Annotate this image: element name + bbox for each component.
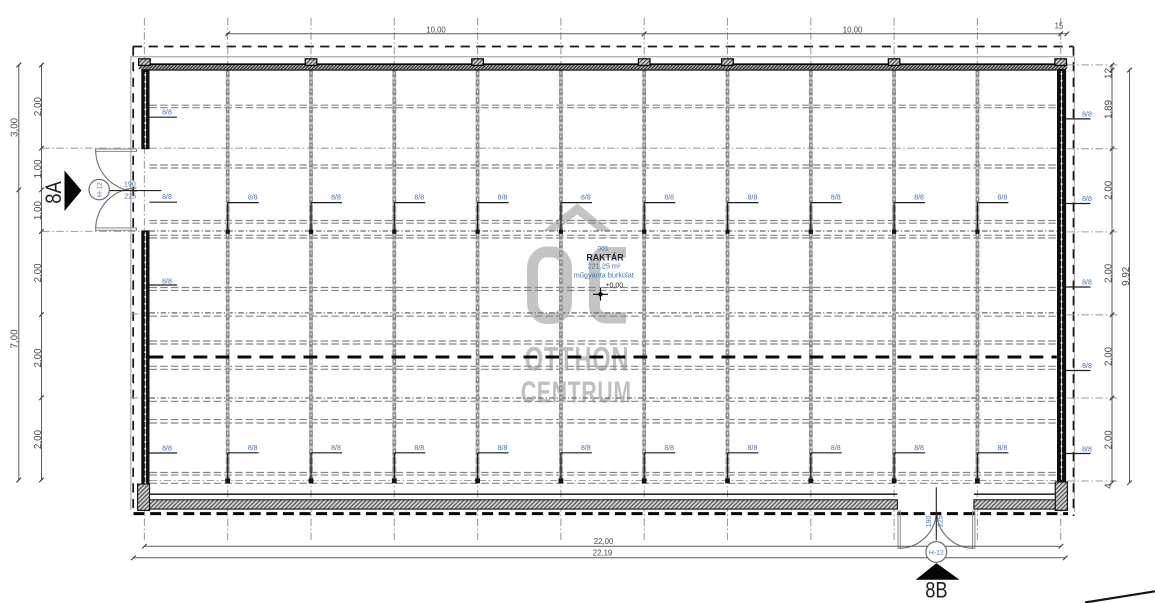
svg-text:2,00: 2,00 (1104, 263, 1115, 283)
svg-text:2,00: 2,00 (33, 97, 44, 117)
svg-text:4: 4 (1104, 483, 1115, 489)
svg-text:8/8: 8/8 (248, 445, 258, 452)
svg-text:8/8: 8/8 (498, 445, 508, 452)
svg-text:8/8: 8/8 (914, 195, 924, 202)
svg-text:8/8: 8/8 (414, 445, 424, 452)
svg-text:8/8: 8/8 (331, 445, 341, 452)
svg-text:8/8: 8/8 (998, 445, 1008, 452)
svg-text:22,19: 22,19 (593, 549, 613, 558)
svg-text:2,00: 2,00 (33, 263, 44, 283)
svg-text:H-12: H-12 (97, 182, 104, 197)
svg-text:8/8: 8/8 (1082, 279, 1092, 286)
svg-text:1,89: 1,89 (1104, 100, 1115, 119)
svg-text:CENTRUM: CENTRUM (521, 375, 632, 410)
svg-text:2,00: 2,00 (1104, 430, 1115, 450)
svg-text:8/8: 8/8 (1082, 196, 1092, 203)
svg-text:8/8: 8/8 (581, 195, 591, 202)
svg-text:22,00: 22,00 (594, 537, 614, 546)
svg-text:8B: 8B (925, 579, 947, 603)
svg-text:8/8: 8/8 (664, 445, 674, 452)
svg-text:3,00: 3,00 (9, 117, 20, 137)
svg-text:műgyanta burkolat: műgyanta burkolat (574, 270, 634, 279)
svg-text:8A: 8A (43, 181, 67, 204)
svg-text:8/8: 8/8 (1082, 446, 1092, 453)
svg-text:8/8: 8/8 (831, 445, 841, 452)
svg-text:8/8: 8/8 (1082, 111, 1092, 118)
svg-text:2,00: 2,00 (33, 348, 44, 368)
svg-text:8/8: 8/8 (664, 195, 674, 202)
svg-text:8/8: 8/8 (748, 195, 758, 202)
svg-text:221,25 m²: 221,25 m² (588, 262, 621, 271)
svg-text:2,00: 2,00 (1104, 346, 1115, 366)
svg-text:001: 001 (597, 246, 609, 253)
svg-text:12: 12 (1104, 68, 1115, 79)
svg-text:225: 225 (938, 515, 945, 527)
svg-text:H-12: H-12 (929, 549, 944, 556)
svg-text:8/8: 8/8 (998, 195, 1008, 202)
svg-text:225: 225 (124, 193, 136, 200)
svg-text:8/8: 8/8 (162, 279, 172, 286)
svg-text:8/8: 8/8 (414, 195, 424, 202)
svg-text:1,00: 1,00 (33, 159, 44, 179)
svg-text:8/8: 8/8 (498, 195, 508, 202)
svg-text:2,00: 2,00 (33, 429, 44, 449)
svg-text:8/8: 8/8 (581, 445, 591, 452)
svg-text:8/8: 8/8 (1082, 363, 1092, 370)
svg-text:8/8: 8/8 (331, 195, 341, 202)
svg-text:8/8: 8/8 (162, 109, 172, 116)
svg-text:190: 190 (124, 182, 136, 189)
svg-text:10,00: 10,00 (843, 26, 863, 35)
svg-text:8/8: 8/8 (162, 194, 172, 201)
svg-text:OTTHON: OTTHON (525, 340, 630, 378)
svg-text:2,00: 2,00 (1104, 180, 1115, 200)
svg-text:9,92: 9,92 (1121, 267, 1132, 286)
svg-text:8/8: 8/8 (248, 195, 258, 202)
svg-text:7,00: 7,00 (9, 329, 20, 349)
svg-text:±0,00: ±0,00 (606, 282, 624, 289)
svg-text:190: 190 (926, 515, 933, 527)
svg-text:8/8: 8/8 (162, 445, 172, 452)
svg-text:8/8: 8/8 (748, 445, 758, 452)
svg-text:10,00: 10,00 (426, 26, 446, 35)
svg-text:8/8: 8/8 (914, 445, 924, 452)
svg-text:8/8: 8/8 (831, 195, 841, 202)
svg-text:15: 15 (1055, 22, 1064, 31)
